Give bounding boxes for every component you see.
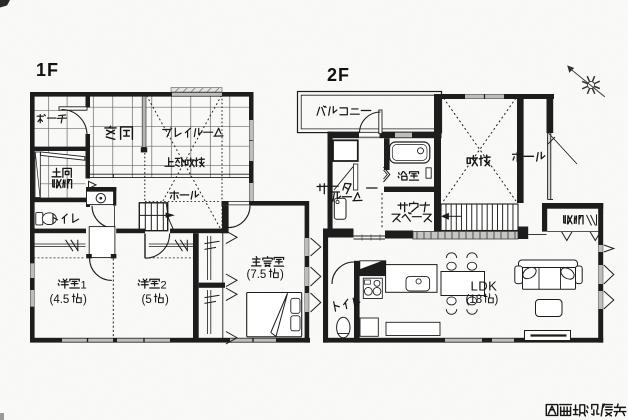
svg-text:1: 1 (81, 280, 87, 292)
svg-text:LDK: LDK (471, 279, 498, 294)
svg-text:1F: 1F (36, 60, 59, 80)
svg-text:2F: 2F (327, 65, 350, 85)
svg-text:(7.5: (7.5 (247, 269, 267, 281)
svg-text:(5: (5 (142, 294, 152, 306)
svg-text:2: 2 (161, 280, 167, 292)
svg-text:(4.5: (4.5 (50, 294, 70, 306)
svg-text:): ) (280, 269, 284, 281)
svg-text:): ) (495, 294, 499, 306)
svg-text:(18: (18 (466, 294, 483, 306)
svg-text:): ) (165, 294, 169, 306)
svg-text:): ) (83, 294, 87, 306)
